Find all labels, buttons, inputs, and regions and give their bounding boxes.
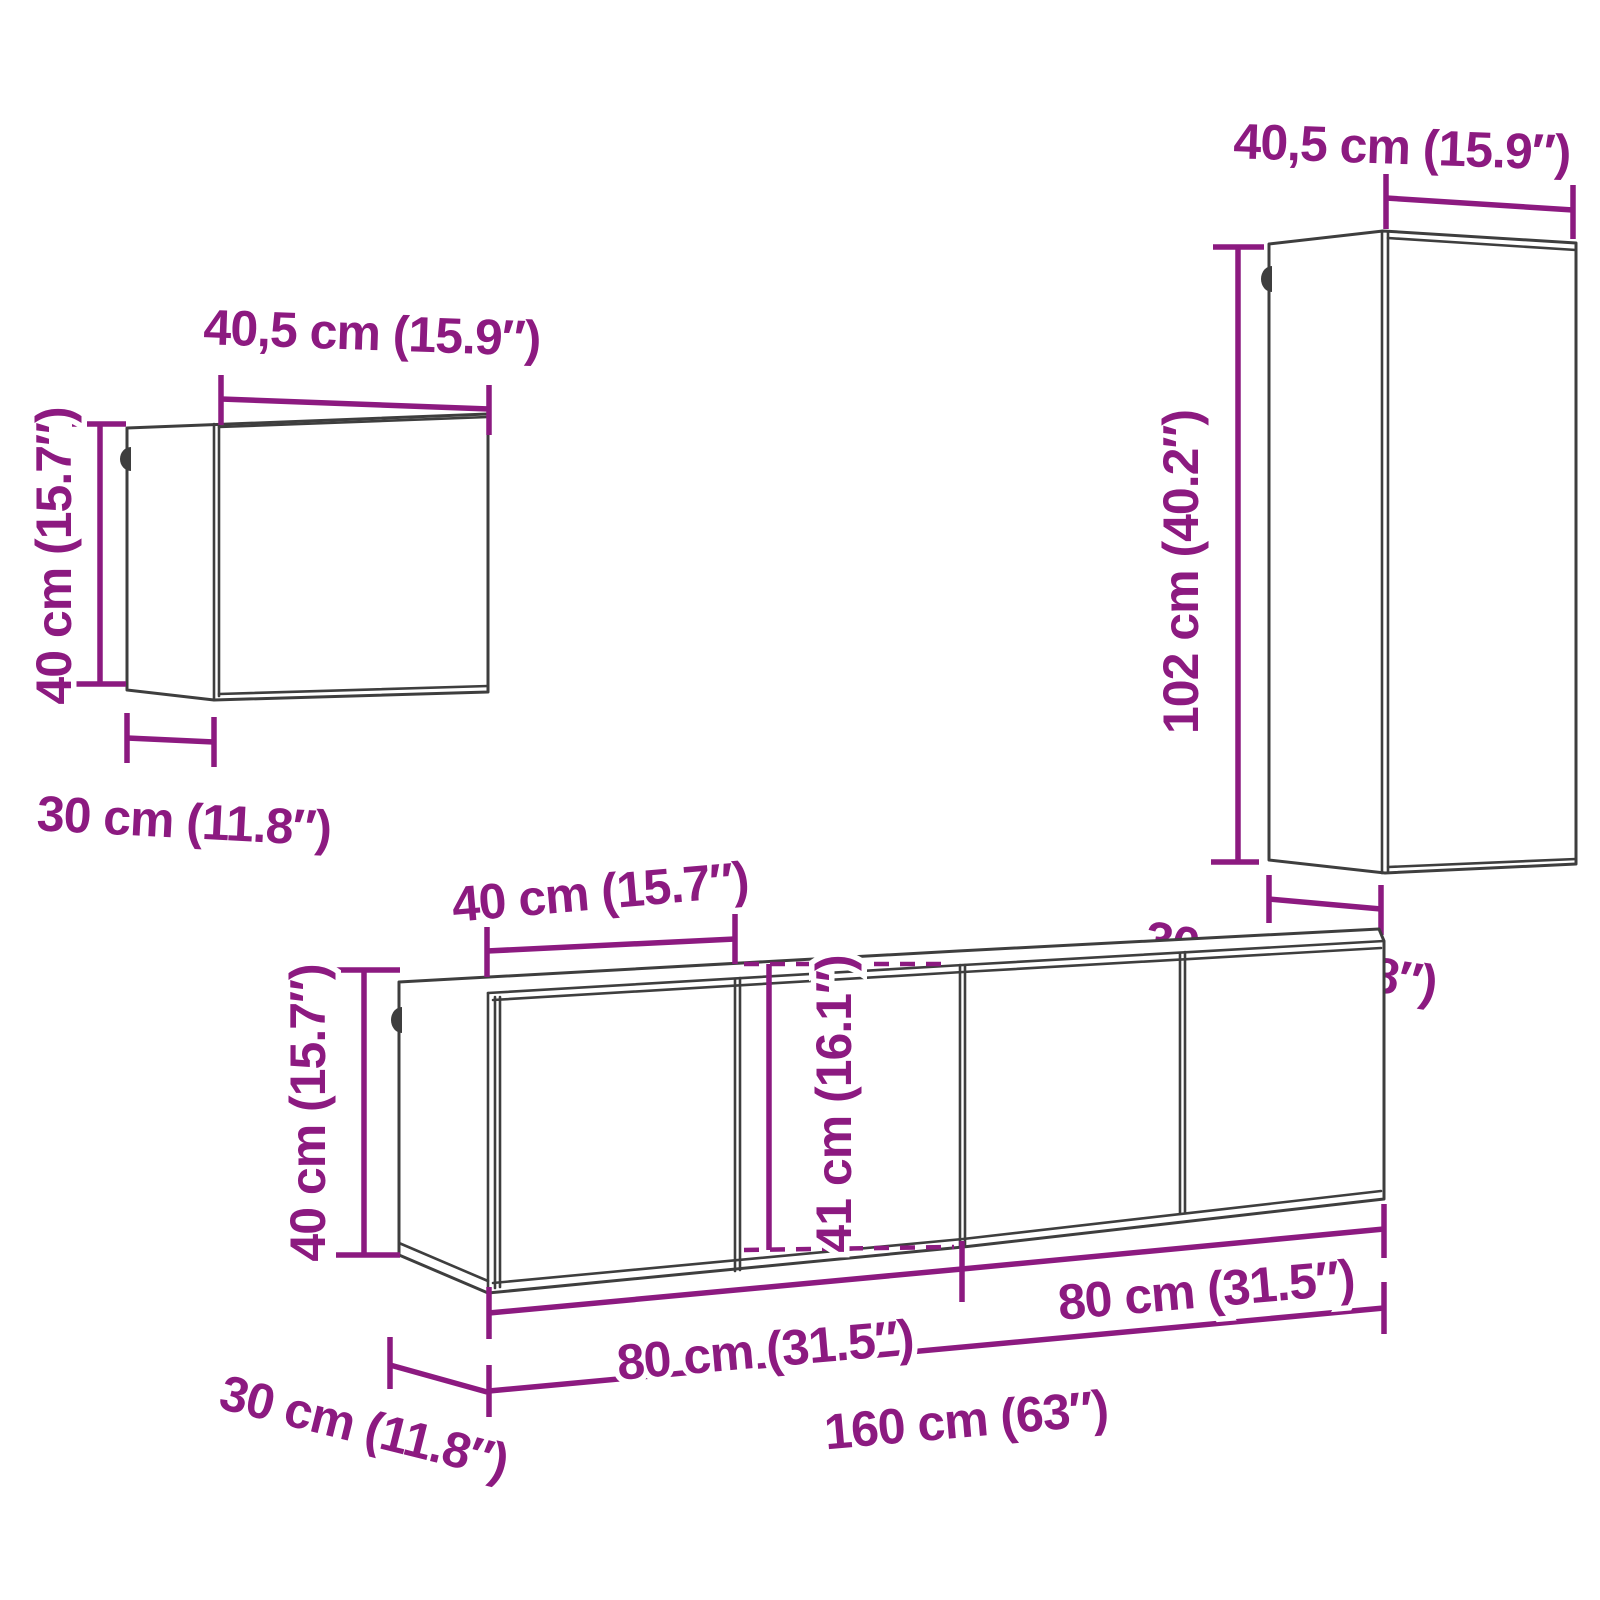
tall-body [1269, 231, 1576, 873]
cube-height-label: 40 cm (15.7″) [26, 407, 82, 704]
furniture-dimension-diagram: 40,5 cm (15.9″) 40 cm (15.7″) 30 cm (11.… [0, 0, 1600, 1600]
tall-wall-cabinet [1261, 231, 1576, 873]
tall-height-label: 102 cm (40.2″) [1153, 410, 1209, 734]
tv-height-left-label: 40 cm (15.7″) [280, 964, 336, 1261]
wall-cube-cabinet [120, 414, 488, 700]
cube-width-label: 40,5 cm (15.9″) [203, 299, 542, 367]
tall-width-label: 40,5 cm (15.9″) [1233, 113, 1572, 181]
dimension-diagram-page: 40,5 cm (15.9″) 40 cm (15.7″) 30 cm (11.… [0, 0, 1600, 1600]
cube-body [127, 414, 488, 700]
tv-height-mid-label: 41 cm (16.1″) [806, 955, 862, 1252]
